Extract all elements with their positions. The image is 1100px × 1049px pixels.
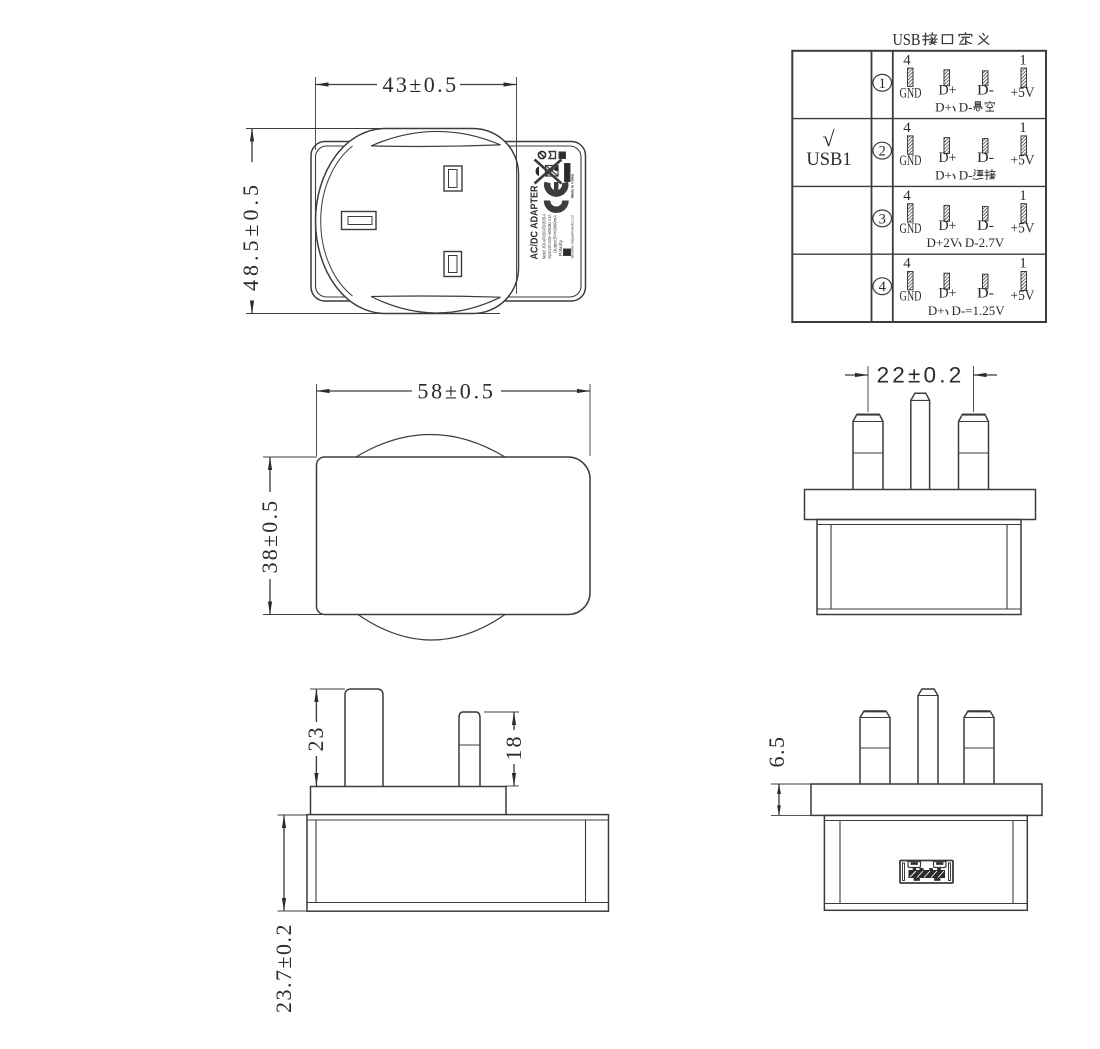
svg-text:4: 4	[903, 120, 911, 136]
svg-text:48.5±0.5: 48.5±0.5	[238, 181, 263, 291]
svg-text:D+: D+	[939, 82, 957, 98]
svg-text:22±0.2: 22±0.2	[877, 363, 965, 388]
svg-text:23: 23	[303, 726, 328, 752]
svg-text:USB1: USB1	[806, 150, 851, 170]
svg-text:GND: GND	[900, 153, 922, 169]
svg-text:6.5: 6.5	[764, 736, 789, 768]
svg-text:D+: D+	[935, 100, 952, 115]
svg-text:Model: JSD-AP015D-050200B-A: Model: JSD-AP015D-050200B-A	[542, 214, 547, 259]
svg-text:D-: D-	[977, 82, 994, 98]
svg-text:3: 3	[879, 211, 886, 227]
svg-text:D-: D-	[959, 167, 973, 182]
svg-text:Output:5V⎓2000mA: Output:5V⎓2000mA	[553, 215, 558, 253]
svg-text:2: 2	[879, 144, 886, 160]
svg-text:D-: D-	[977, 218, 994, 234]
svg-text:Input:100-240V~50/60Hz 0.4A: Input:100-240V~50/60Hz 0.4A	[547, 214, 552, 258]
svg-text:Shenzhen JinquanPowerCo.,Ltd: Shenzhen JinquanPowerCo.,Ltd	[570, 216, 575, 259]
svg-text:18: 18	[501, 735, 526, 761]
svg-text:23.7±0.2: 23.7±0.2	[271, 923, 296, 1013]
svg-text:+5V: +5V	[1011, 153, 1035, 169]
svg-text:D-2.7V: D-2.7V	[965, 235, 1005, 250]
svg-text:D-=1.25V: D-=1.25V	[951, 303, 1005, 318]
svg-text:+5V: +5V	[1011, 288, 1035, 304]
svg-text:D-: D-	[977, 286, 994, 302]
svg-text:+5V: +5V	[1011, 85, 1035, 101]
svg-text:D-: D-	[977, 150, 994, 166]
svg-text:D+: D+	[939, 286, 957, 302]
svg-text:4: 4	[879, 279, 887, 295]
svg-text:D+2V: D+2V	[927, 235, 960, 250]
svg-text:D+: D+	[935, 167, 952, 182]
svg-text:√: √	[822, 126, 835, 151]
svg-text:1: 1	[1019, 256, 1027, 272]
svg-text:GND: GND	[900, 85, 922, 101]
svg-text:38±0.5: 38±0.5	[257, 499, 282, 574]
svg-text:Polarity: Polarity	[558, 239, 563, 256]
svg-text:4: 4	[903, 52, 911, 68]
svg-text:D+: D+	[939, 218, 957, 234]
svg-text:1: 1	[1019, 52, 1027, 68]
svg-text:+5V: +5V	[1011, 220, 1035, 236]
svg-text:GND: GND	[900, 221, 922, 237]
svg-text:GND: GND	[900, 289, 922, 305]
svg-text:1: 1	[1019, 120, 1027, 136]
svg-text:58±0.5: 58±0.5	[417, 379, 495, 404]
svg-text:USB: USB	[893, 30, 921, 49]
svg-text:1: 1	[1019, 188, 1027, 204]
svg-text:D-: D-	[959, 100, 973, 115]
svg-text:4: 4	[903, 188, 911, 204]
svg-text:43±0.5: 43±0.5	[383, 72, 459, 97]
svg-text:D+: D+	[928, 303, 945, 318]
svg-text:D+: D+	[939, 150, 957, 166]
svg-text:AC/DC ADAPTER: AC/DC ADAPTER	[530, 185, 541, 260]
svg-text:4: 4	[903, 256, 911, 272]
svg-text:1: 1	[879, 76, 886, 92]
